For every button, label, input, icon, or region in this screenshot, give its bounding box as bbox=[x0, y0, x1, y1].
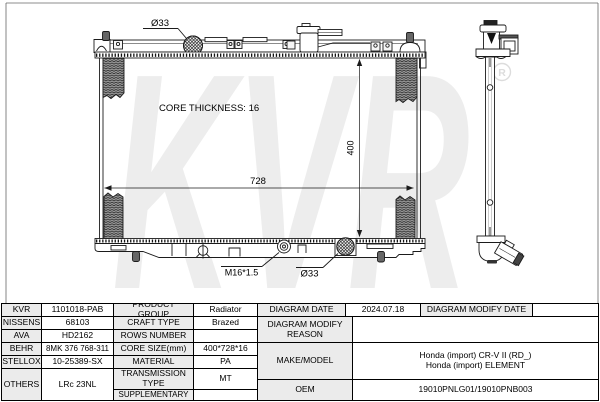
spec-value-material: PA bbox=[193, 355, 258, 369]
outlet-port bbox=[335, 238, 356, 256]
fin-block-top-left bbox=[103, 58, 124, 99]
number-cell-others: LRc 23NL bbox=[41, 368, 114, 401]
core-height-label: 400 bbox=[346, 140, 356, 155]
diagram-modify-reason-value bbox=[352, 316, 599, 343]
spec-label-core-size: CORE SIZE(mm) bbox=[113, 342, 194, 356]
side-core-column bbox=[486, 57, 495, 236]
registered-trademark-icon: R bbox=[494, 64, 511, 81]
diagram-date-label: DIAGRAM DATE bbox=[257, 303, 346, 317]
spec-label-material: MATERIAL bbox=[113, 355, 194, 369]
diagram-modify-date-value bbox=[532, 303, 599, 317]
brand-cell-behr: BEHR bbox=[1, 342, 42, 356]
spec-label-transmission-type: TRANSMISSION TYPE bbox=[113, 368, 194, 390]
svg-text:R: R bbox=[498, 67, 506, 79]
inlet-diameter-label: Ø33 bbox=[151, 18, 169, 29]
spec-value-product-group: Radiator bbox=[193, 303, 258, 317]
drain-thread-label: M16*1.5 bbox=[225, 268, 259, 278]
drain-plug bbox=[278, 240, 291, 253]
make-model-line2: Honda (import) ELEMENT bbox=[426, 361, 525, 371]
brand-cell-kvr: KVR bbox=[1, 303, 42, 317]
fin-block-top-right bbox=[396, 58, 417, 103]
fin-block-bottom-left bbox=[104, 193, 123, 239]
number-cell-ava: HD2162 bbox=[41, 329, 114, 343]
make-model-label: MAKE/MODEL bbox=[257, 342, 353, 380]
spec-label-rows-number: ROWS NUMBER bbox=[113, 329, 194, 343]
number-cell-behr: 8MK 376 768-311 bbox=[41, 342, 114, 356]
cap-top bbox=[484, 21, 497, 26]
diagram-modify-reason-label: DIAGRAM MODIFY REASON bbox=[257, 316, 353, 343]
brand-cell-ava: AVA bbox=[1, 329, 42, 343]
diagram-date-value: 2024.07.18 bbox=[345, 303, 421, 317]
spec-label-supplementary: SUPPLEMENTARY bbox=[113, 389, 194, 401]
mount-pin bbox=[133, 252, 140, 262]
number-cell-kvr: 1101018-PAB bbox=[41, 303, 114, 317]
number-cell-stellox: 10-25389-SX bbox=[41, 355, 114, 369]
oem-label: OEM bbox=[257, 379, 353, 401]
top-crimp-band bbox=[95, 52, 425, 58]
diagram-modify-date-label: DIAGRAM MODIFY DATE bbox=[420, 303, 533, 317]
radiator-catalog-page: KVR R bbox=[0, 0, 600, 402]
brand-cell-others: OTHERS bbox=[1, 368, 42, 401]
spec-value-transmission-type: MT bbox=[193, 368, 258, 390]
spec-label-craft-type: CRAFT TYPE bbox=[113, 316, 194, 330]
bottom-crimp-band bbox=[95, 239, 425, 244]
outlet-diameter-label: Ø33 bbox=[301, 269, 319, 280]
spec-label-product-group: PRODUCT GROUP bbox=[113, 303, 194, 317]
oem-value: 19010PNLG01/19010PNB003 bbox=[352, 379, 599, 401]
number-cell-nissens: 68103 bbox=[41, 316, 114, 330]
fin-block-bottom-right bbox=[396, 196, 415, 239]
core-width-label: 728 bbox=[250, 176, 266, 187]
brand-cell-nissens: NISSENS bbox=[1, 316, 42, 330]
radiator-side-view bbox=[476, 21, 526, 267]
spec-value-core-size: 400*728*16 bbox=[193, 342, 258, 356]
spec-value-rows-number bbox=[193, 329, 258, 343]
brand-cell-stellox: STELLOX bbox=[1, 355, 42, 369]
mount-pin bbox=[378, 252, 385, 263]
make-model-value: Honda (import) CR-V II (RD_) Honda (impo… bbox=[352, 342, 599, 380]
clip bbox=[114, 41, 123, 50]
mount-pin bbox=[103, 32, 110, 41]
spec-value-supplementary bbox=[193, 389, 258, 401]
technical-drawing: KVR R bbox=[0, 0, 600, 303]
spec-value-craft-type: Brazed bbox=[193, 316, 258, 330]
mount-pin bbox=[407, 33, 414, 43]
core-thickness-label: CORE THICKNESS: 16 bbox=[159, 103, 259, 114]
